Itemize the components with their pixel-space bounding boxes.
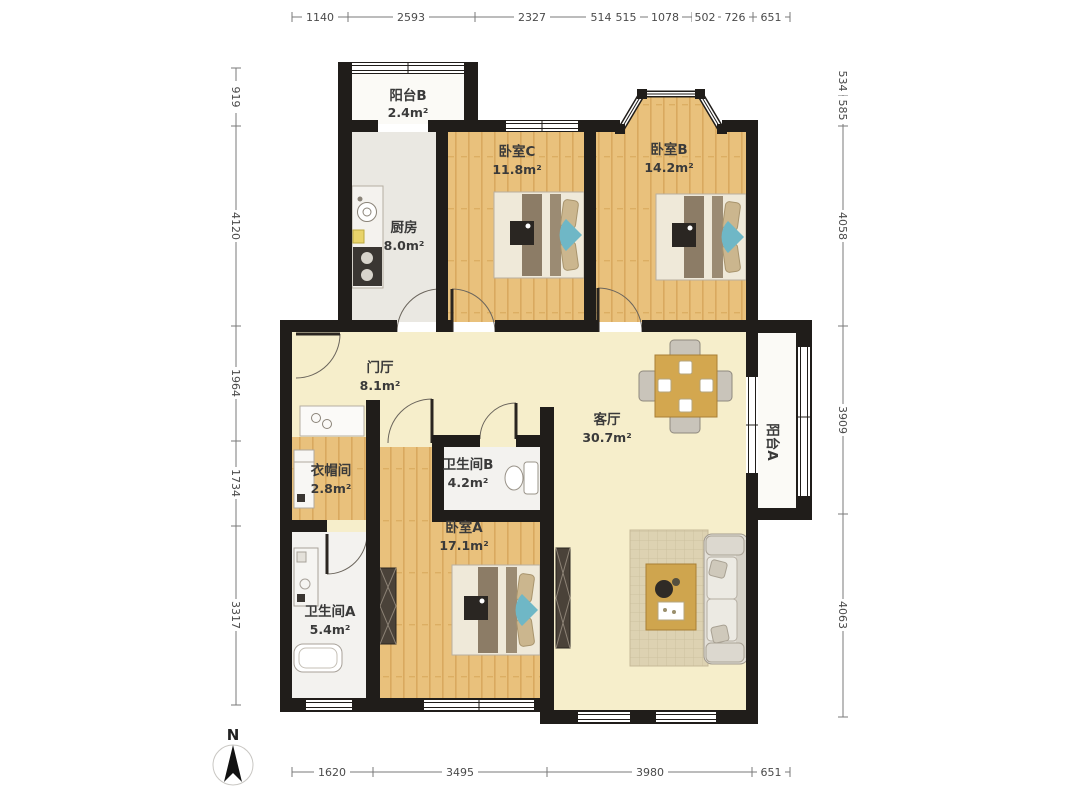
dim-bottom-2: 3495 [446, 766, 474, 779]
dim-top-3: 2327 [518, 11, 546, 24]
dim-left-1: 919 [229, 87, 242, 108]
area-bedroom-c: 11.8m² [492, 162, 541, 177]
dim-left-2: 4120 [229, 212, 242, 240]
dim-left-4: 1734 [229, 469, 242, 497]
window-living-bottom-1 [578, 712, 630, 722]
area-foyer: 8.1m² [360, 378, 401, 393]
area-bedroom-b: 14.2m² [644, 160, 693, 175]
label-kitchen: 厨房 [391, 219, 418, 236]
window-balcony-b-top [352, 63, 464, 73]
bed-icon-bedroom-c [494, 192, 584, 278]
cloakroom-cabinet-icon [294, 450, 314, 508]
label-bedroom-c: 卧室C [499, 143, 536, 160]
dim-top-6: 1078 [651, 11, 679, 24]
dim-top-9: 651 [761, 11, 782, 24]
coffee-table-icon [646, 564, 696, 630]
window-balcony-a-side [798, 347, 810, 496]
north-compass: N [213, 726, 253, 785]
dim-top-1: 1140 [306, 11, 334, 24]
window-bedroom-c-top [506, 121, 578, 131]
area-bedroom-a: 17.1m² [439, 538, 488, 553]
window-bathroom-a-bottom [306, 700, 352, 710]
dim-right-3: 4058 [836, 212, 849, 240]
label-bedroom-b: 卧室B [650, 141, 687, 158]
label-balcony-b: 阳台B [389, 87, 426, 104]
tv-wall-cabinet-icon [556, 548, 570, 648]
dim-top-4: 514 [591, 11, 612, 24]
dim-top-7: 502 [695, 11, 716, 24]
area-bathroom-a: 5.4m² [310, 622, 351, 637]
dim-right-1: 534 [836, 71, 849, 92]
sofa-icon [704, 534, 748, 664]
dim-bottom-4: 651 [761, 766, 782, 779]
dim-bottom-1: 1620 [318, 766, 346, 779]
north-label: N [227, 726, 240, 744]
dim-left-3: 1964 [229, 369, 242, 397]
shoe-cabinet-icon [300, 406, 364, 436]
label-cloakroom: 衣帽间 [311, 462, 352, 479]
floorplan-page: 阳台B 2.4m² 厨房 8.0m² 卧室C 11.8m² 卧室B 14.2m²… [0, 0, 1084, 793]
bathtub-icon [294, 644, 342, 672]
window-bedroom-a-bottom [424, 700, 534, 710]
dim-top-8: 726 [725, 11, 746, 24]
label-living-room: 客厅 [593, 411, 622, 428]
bed-icon-bedroom-a [452, 565, 540, 655]
label-bathroom-a: 卫生间A [305, 603, 356, 620]
label-foyer: 门厅 [367, 359, 394, 376]
dim-right-4: 3909 [836, 406, 849, 434]
area-bathroom-b: 4.2m² [448, 475, 489, 490]
area-balcony-b: 2.4m² [388, 105, 429, 120]
label-balcony-a: 阳台A [764, 423, 781, 461]
wardrobe-icon-bedroom-a [380, 568, 396, 644]
window-living-bottom-2 [656, 712, 716, 722]
dim-top-5: 515 [616, 11, 637, 24]
dim-bottom-3: 3980 [636, 766, 664, 779]
dim-right-5: 4063 [836, 601, 849, 629]
kitchen-counter-icon [352, 186, 383, 288]
area-kitchen: 8.0m² [384, 238, 425, 253]
dim-top-2: 2593 [397, 11, 425, 24]
label-bathroom-b: 卫生间B [443, 456, 494, 473]
area-cloakroom: 2.8m² [311, 481, 352, 496]
room-balcony-a [758, 333, 796, 508]
label-bedroom-a: 卧室A [445, 519, 483, 536]
dim-left-5: 3317 [229, 601, 242, 629]
floorplan-canvas: 阳台B 2.4m² 厨房 8.0m² 卧室C 11.8m² 卧室B 14.2m²… [0, 0, 1084, 793]
area-living-room: 30.7m² [582, 430, 631, 445]
dim-right-2: 585 [836, 100, 849, 121]
balcony-a-sliding-door [746, 377, 758, 473]
bed-icon-bedroom-b [656, 194, 746, 280]
vanity-icon [294, 548, 318, 606]
